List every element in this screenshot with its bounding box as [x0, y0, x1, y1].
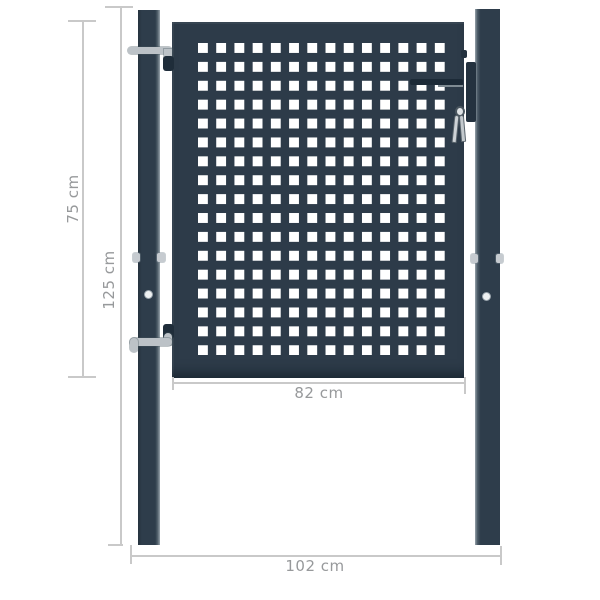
dim-102-cap-left	[130, 545, 132, 564]
dim-75-cap-bottom	[68, 376, 96, 378]
gate-leaf	[172, 22, 464, 378]
product-diagram: 75 cm 125 cm 82 cm 102 cm	[0, 0, 600, 600]
dim-125-cap-bottom	[108, 544, 123, 546]
hinge-top-body-icon	[163, 56, 174, 71]
dim-125-line	[120, 7, 122, 545]
gate-handle-highlight	[438, 85, 463, 87]
dim-82-label: 82 cm	[279, 385, 359, 401]
dim-102-label: 102 cm	[265, 558, 365, 574]
left-post	[138, 10, 160, 545]
right-post-rail-tab-outer	[496, 254, 503, 263]
dim-102-cap-right	[500, 546, 502, 565]
dim-75-cap-top	[68, 20, 96, 22]
left-post-rail-tab-outer	[133, 253, 140, 262]
left-post-rail-tab-inner	[157, 253, 165, 262]
lock-tab-icon	[461, 50, 467, 58]
dim-125-label: 125 cm	[101, 245, 117, 315]
right-post-rail-tab-inner	[471, 254, 478, 263]
dim-82-cap-left	[172, 377, 174, 390]
right-post-bolt-icon	[482, 292, 491, 301]
perforation-grid	[198, 43, 445, 355]
hinge-bottom-rod-end-icon	[130, 338, 138, 352]
right-post	[475, 9, 500, 545]
dim-125-cap-top	[105, 6, 133, 8]
left-post-bolt-icon	[144, 290, 153, 299]
dim-75-line	[82, 21, 84, 377]
dim-75-label: 75 cm	[65, 169, 81, 229]
lock-plate-icon	[466, 62, 476, 122]
dim-82-cap-right	[464, 377, 466, 394]
